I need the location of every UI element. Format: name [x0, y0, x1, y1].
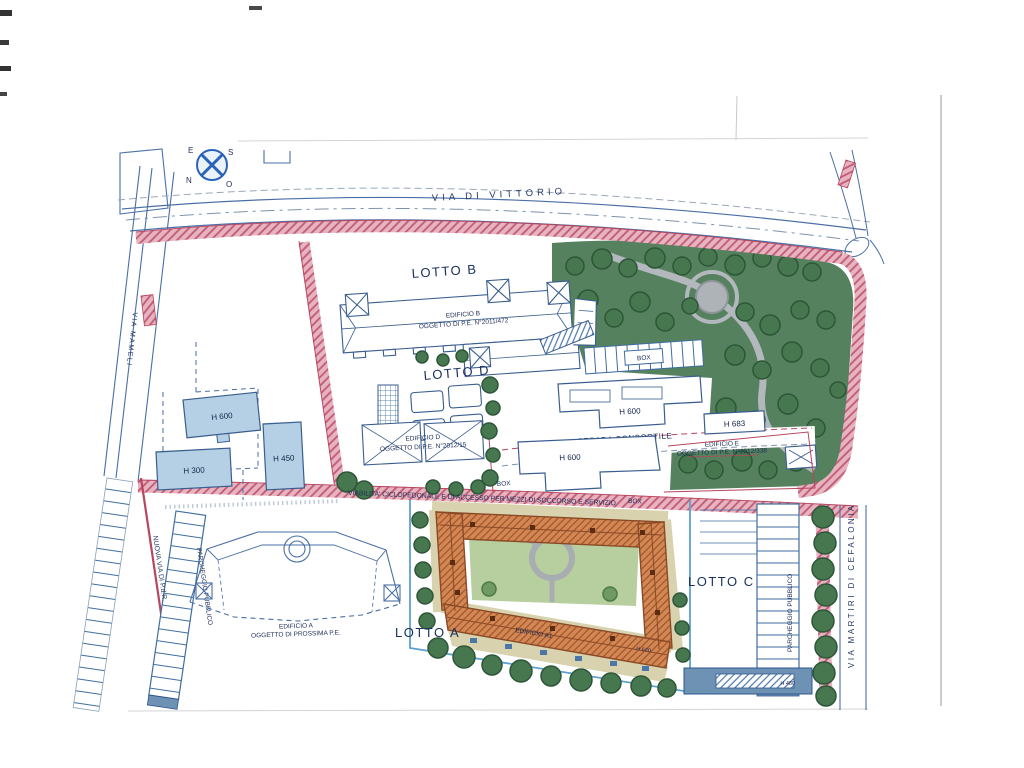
lotto-c: LOTTO C PARCHEGGIO PUBBLICO H 480: [684, 504, 812, 696]
compass-rose: E S N O: [186, 146, 233, 189]
tick-row: [165, 501, 340, 507]
building-edificio-a: [190, 532, 400, 621]
label-box-strip: BOX: [637, 354, 652, 362]
label-lotto-c: LOTTO C: [688, 574, 755, 589]
building-h600-lower: [518, 436, 660, 491]
label-lotto-d: LOTTO D: [423, 362, 491, 383]
crosswalk-via-mameli: [141, 295, 156, 326]
building-h300: H 300: [156, 448, 232, 490]
label-h300: H 300: [183, 465, 205, 475]
site-plan-svg: E S N O VIA DI VITTORIO VIA MAMELI: [0, 0, 1024, 768]
building-h600-upper: [558, 376, 702, 428]
label-h480: H 480: [780, 681, 795, 687]
building-h450: H 450: [263, 422, 304, 490]
road-via-mameli: [104, 166, 174, 482]
compass-east: E: [188, 146, 193, 155]
compass-south: S: [228, 148, 233, 157]
tower-grid: [378, 385, 398, 427]
label-lotto-b: LOTTO B: [411, 261, 478, 281]
strip-h480: H 480: [684, 668, 812, 694]
label-via-martiri: VIA MARTIRI DI CEFALONIA: [847, 503, 856, 668]
compass-west: O: [226, 180, 232, 189]
label-parcheggio-right: PARCHEGGIO PUBBLICO: [787, 574, 794, 652]
lotto-c-parking-rows: [700, 510, 757, 554]
crosswalk-top-right: [838, 160, 856, 188]
label-via-mameli: VIA MAMELI: [125, 312, 138, 367]
label-lotto-a: LOTTO A: [395, 625, 460, 640]
parking-strip-right: PARCHEGGIO PUBBLICO: [757, 504, 799, 696]
label-h600-upper: H 600: [619, 406, 641, 416]
label-box-mid: BOX: [628, 498, 643, 505]
road-top-right: [830, 150, 884, 264]
compass-north: N: [186, 176, 192, 185]
building-h683: H 683: [704, 411, 765, 434]
label-edificio-a-2: OGGETTO DI PROSSIMA P.E.: [251, 629, 341, 639]
label-h450: H 450: [273, 453, 295, 463]
label-h683: H 683: [724, 419, 746, 429]
label-edificio-a-1: EDIFICIO A: [279, 622, 314, 630]
scanned-site-plan-page: E S N O VIA DI VITTORIO VIA MAMELI: [0, 0, 1024, 768]
right-strip-trees: [812, 506, 837, 706]
label-box-left: BOX: [497, 480, 512, 488]
park-pond: [696, 281, 728, 313]
building-h600-left: H 600: [183, 392, 261, 445]
label-h600-lower: H 600: [559, 453, 581, 463]
